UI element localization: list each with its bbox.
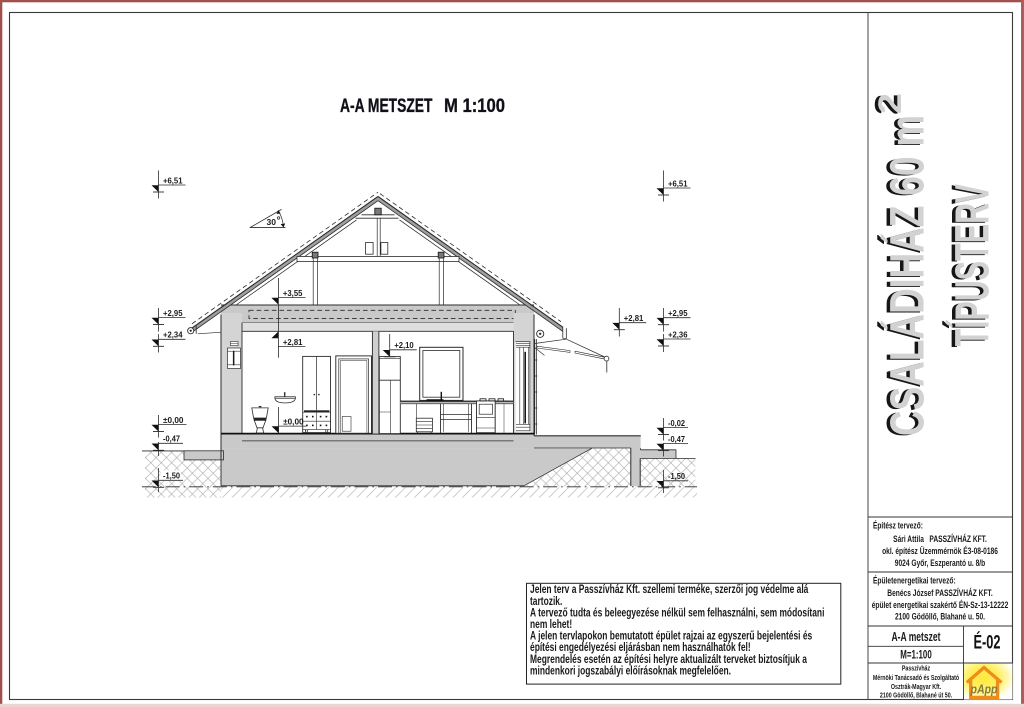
svg-text:M 1:100: M 1:100 xyxy=(444,95,505,117)
svg-text:A tervező tudta és beleegyezés: A tervező tudta és beleegyezése nélkül s… xyxy=(530,607,825,620)
svg-text:CSALÁDIHÁZ 60 m: CSALÁDIHÁZ 60 m xyxy=(881,115,935,436)
svg-text:9024 Győr, Eszperantó u. 8/b: 9024 Győr, Eszperantó u. 8/b xyxy=(895,558,985,568)
svg-text:+2,36: +2,36 xyxy=(668,329,688,339)
svg-text:2: 2 xyxy=(872,93,908,114)
svg-text:M=1:100: M=1:100 xyxy=(900,650,932,662)
svg-text:A-A metszet: A-A metszet xyxy=(892,629,941,644)
svg-text:-0,02: -0,02 xyxy=(668,418,685,428)
svg-text:±0,00: ±0,00 xyxy=(283,417,304,427)
svg-text:±0,00: ±0,00 xyxy=(163,415,184,425)
svg-text:Épületenergetikai tervező:: Épületenergetikai tervező: xyxy=(873,574,956,586)
svg-text:Jelen terv a Passzívház Kft. s: Jelen terv a Passzívház Kft. szellemi te… xyxy=(530,584,809,597)
svg-text:Passzívház: Passzívház xyxy=(902,665,931,673)
svg-text:-0,47: -0,47 xyxy=(668,434,685,444)
svg-text:Sári Attila PASSZÍVHÁZ KFT.: Sári Attila PASSZÍVHÁZ KFT. xyxy=(893,533,987,545)
svg-text:Benécs József PASSZÍVHÁZ KFT.: Benécs József PASSZÍVHÁZ KFT. xyxy=(887,587,992,599)
svg-text:Építész tervező:: Építész tervező: xyxy=(873,519,923,531)
svg-text:É-02: É-02 xyxy=(974,632,1001,654)
svg-text:+2,81: +2,81 xyxy=(283,337,303,347)
svg-text:+2,81: +2,81 xyxy=(624,313,644,323)
svg-text:Osztrák-Magyar Kft.: Osztrák-Magyar Kft. xyxy=(891,683,941,691)
svg-text:+2,95: +2,95 xyxy=(163,308,183,318)
svg-text:-1,50: -1,50 xyxy=(668,471,685,481)
svg-text:+2,95: +2,95 xyxy=(668,308,688,318)
svg-text:2100 Gödöllő, Blahané út 50.: 2100 Gödöllő, Blahané út 50. xyxy=(880,692,952,700)
svg-text:+2,10: +2,10 xyxy=(394,340,414,350)
svg-text:mindenkori jogszabályi előírás: mindenkori jogszabályi előírásoknak megf… xyxy=(530,665,731,678)
svg-text:+2,34: +2,34 xyxy=(163,330,183,340)
svg-text:2100 Gödöllő, Blahané u. 50.: 2100 Gödöllő, Blahané u. 50. xyxy=(895,611,985,621)
svg-text:A-A METSZET: A-A METSZET xyxy=(340,95,433,117)
svg-text:+6,51: +6,51 xyxy=(668,178,688,188)
svg-text:pApp: pApp xyxy=(970,683,998,697)
svg-text:épület energetikai szakértő ÉN: épület energetikai szakértő ÉN-Sz-13-122… xyxy=(872,599,1009,611)
svg-text:+3,55: +3,55 xyxy=(283,288,303,298)
svg-text:TÍPUSTERV: TÍPUSTERV xyxy=(946,184,1000,347)
svg-text:-0,47: -0,47 xyxy=(163,434,180,444)
svg-text:Mérnöki Tanácsadó és Szolgálta: Mérnöki Tanácsadó és Szolgáltató xyxy=(873,674,959,682)
svg-text:30: 30 xyxy=(267,218,277,227)
svg-text:+6,51: +6,51 xyxy=(163,175,183,185)
svg-text:okl. építész Üzemmérnök É3-08-: okl. építész Üzemmérnök É3-08-0186 xyxy=(882,545,998,557)
svg-text:-1,50: -1,50 xyxy=(163,471,180,481)
